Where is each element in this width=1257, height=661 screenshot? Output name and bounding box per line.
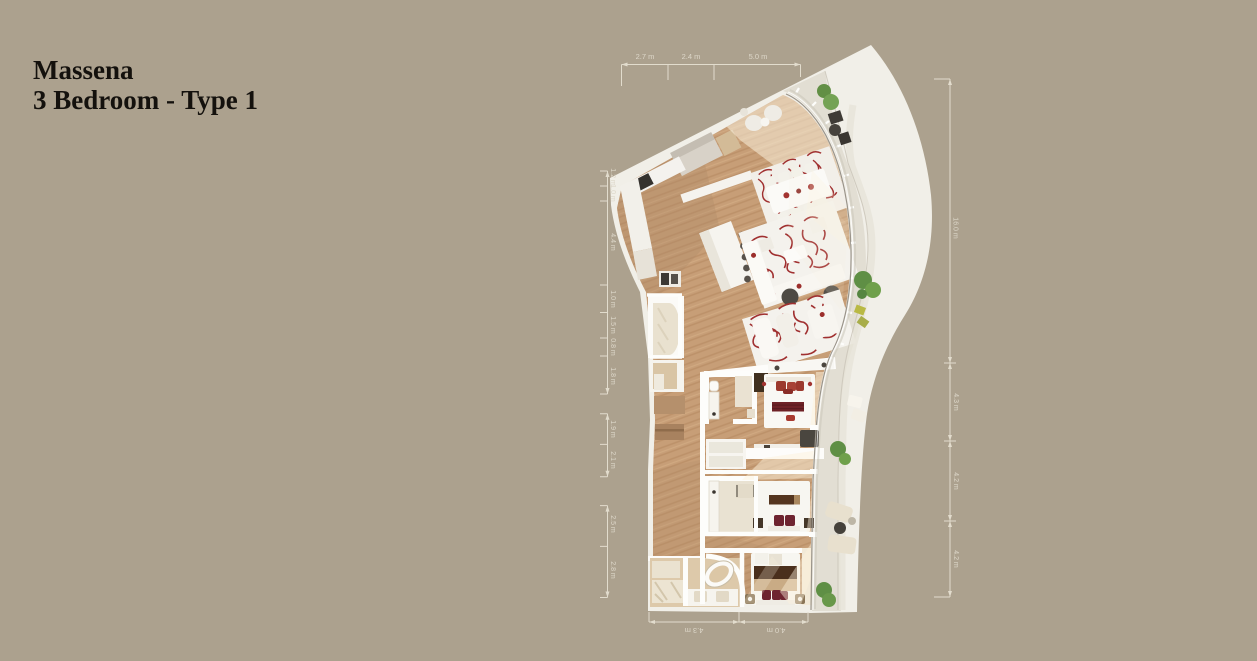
svg-text:1.0 m: 1.0 m [609,184,616,202]
svg-text:2.4 m: 2.4 m [682,52,701,61]
svg-text:4.0 m: 4.0 m [767,626,786,635]
svg-text:1.9 m: 1.9 m [609,420,616,438]
svg-text:1.0 m: 1.0 m [609,290,616,308]
svg-text:1.5 m: 1.5 m [609,316,616,334]
svg-text:0.8 m: 0.8 m [609,338,616,356]
svg-text:4.4 m: 4.4 m [609,233,616,251]
svg-text:2.7 m: 2.7 m [636,52,655,61]
svg-text:4.3 m: 4.3 m [952,393,959,411]
svg-text:2.8 m: 2.8 m [609,561,616,579]
svg-text:2.1 m: 2.1 m [609,451,616,469]
svg-text:1.8 m: 1.8 m [609,367,616,385]
svg-text:4.2 m: 4.2 m [952,472,959,490]
svg-text:16.0 m: 16.0 m [952,217,959,239]
svg-text:5.0 m: 5.0 m [749,52,768,61]
svg-text:4.2 m: 4.2 m [952,550,959,568]
svg-text:2.5 m: 2.5 m [609,515,616,533]
svg-text:4.3 m: 4.3 m [685,626,704,635]
